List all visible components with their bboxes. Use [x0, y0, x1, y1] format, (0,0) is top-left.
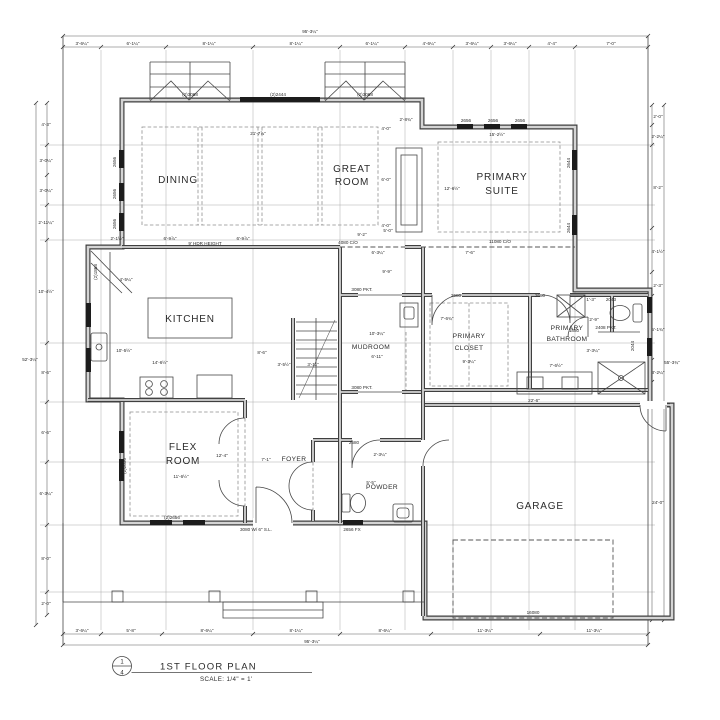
ann-d-9-2: 9'-2" — [357, 232, 367, 237]
ann-great-width: 21'-7⅞" — [250, 131, 266, 136]
ann-flex-h: 12'-4" — [216, 453, 228, 458]
kitchen-sink — [91, 333, 107, 361]
range — [140, 377, 173, 398]
ann-wc-door: 1880 — [569, 328, 580, 333]
room-label-kitchen: KITCHEN — [165, 314, 215, 325]
porch-post — [112, 591, 123, 602]
room-label-flex-1: FLEX — [169, 442, 197, 453]
ann-flex-win-front: (2)2656 — [164, 515, 180, 520]
ann-suite-w: 15'-2½" — [489, 131, 505, 137]
porch-post — [403, 591, 414, 602]
dim-right-1: 2'-2¼" — [652, 134, 665, 139]
ann-d-6-3: 6'-3¼" — [372, 250, 385, 255]
ann-wc-clr: 1'-3" — [586, 297, 596, 302]
dim-left-4: 10'-4½" — [38, 288, 54, 294]
room-label-great-2: ROOM — [335, 177, 369, 188]
dim-left-8: 8'-0" — [41, 556, 51, 561]
dim-right-overall: 55'-3¾" — [664, 360, 680, 365]
dim-bottom-4: 8'-6¼" — [379, 628, 392, 633]
room-label-suite-2: SUITE — [485, 186, 518, 197]
dim-bottom-5: 11'-3¼" — [477, 628, 493, 633]
ann-wc-d: 2'-9" — [589, 317, 599, 322]
garage-door — [453, 540, 613, 618]
ann-front-door: 3080 W/ 6" S.L. — [240, 527, 272, 532]
ann-suite-win-r1: 2644 — [566, 157, 571, 168]
ann-header-center: (2)2444 — [270, 92, 286, 97]
dim-left-0: 4'-3" — [41, 122, 51, 127]
dim-right-5: 5'-1¾" — [652, 327, 665, 332]
porch-post — [306, 591, 317, 602]
fireplace — [396, 148, 422, 232]
kitchen-cabinet — [197, 375, 232, 398]
dim-left-6: 6'-6" — [41, 430, 51, 435]
dim-top-4: 6'-1¼" — [366, 41, 379, 46]
dim-top-5: 4'-6¼" — [423, 41, 436, 46]
ann-powder-d: 5'-5" — [366, 480, 376, 485]
porch-steps — [223, 602, 323, 618]
dim-left-5: 8'-6" — [41, 370, 51, 375]
room-label-closet-2: CLOSET — [455, 345, 484, 352]
ann-mud-h: 9'-9" — [382, 269, 392, 274]
powder-toilet — [342, 494, 350, 512]
ann-fp-d2: 6'-0" — [381, 177, 391, 182]
dim-left-7: 6'-3¼" — [40, 491, 53, 496]
dim-top-2: 8'-1¼" — [203, 41, 216, 46]
ann-dining-win-2: 2656 — [112, 188, 117, 199]
ann-k-w: 14'-6½" — [152, 359, 168, 365]
title-block: 1 4 1ST FLOOR PLAN SCALE: 1/4" = 1' — [113, 657, 313, 684]
dim-right-4: 2'-3" — [653, 283, 663, 288]
ann-bath-door: 2680 — [535, 293, 546, 298]
room-label-bath-2: BATHROOM — [547, 336, 588, 343]
ann-d-2-1: 2'-1½" — [111, 235, 124, 241]
detail-number: 1 — [120, 660, 124, 666]
room-label-great-1: GREAT — [333, 164, 371, 175]
dim-top-overall: 95'-3¼" — [302, 29, 318, 34]
ann-fp-d4: 2'-8¾" — [400, 117, 413, 122]
ann-suite-win-1: 2656 — [461, 118, 472, 123]
dim-bottom-2: 8'-6¼" — [201, 628, 214, 633]
ann-bay-left: (2)3068 — [182, 92, 198, 97]
ann-bay-right: (2)3068 — [357, 92, 373, 97]
ann-closet-d: 7'-6¾" — [441, 316, 454, 321]
porch-post — [209, 591, 220, 602]
dim-left-3: 2'-11¼" — [38, 220, 54, 225]
powder-sink — [393, 504, 413, 522]
ann-mud-d: 10'-3¼" — [369, 331, 385, 336]
dim-right-6: 3'-2¼" — [652, 370, 665, 375]
plan-scale: SCALE: 1/4" = 1' — [200, 676, 253, 683]
ann-suite-h: 12'-6½" — [444, 185, 460, 191]
ann-garage-w: 22'-6" — [528, 398, 540, 403]
dim-right-0: 2'-0" — [653, 114, 663, 119]
dim-right-2: 8'-2" — [653, 185, 663, 190]
ann-shower-win: 2044 — [630, 340, 635, 351]
ann-d-3-5: 3'-5½" — [278, 361, 291, 367]
ann-closet-w: 9'-3¼" — [463, 359, 476, 364]
room-label-garage: GARAGE — [516, 501, 564, 512]
drawing-sheet: 95'-3¼" 3'-6¼" 6'-1¼" 8'-1¼" 8'-1¼" 6'-1… — [0, 0, 720, 720]
dim-left-overall: 52'-3¼" — [22, 357, 38, 362]
porch — [63, 523, 425, 618]
ann-pkt-wc: 2408 PKT. — [595, 325, 616, 330]
dim-top-6: 3'-6¼" — [466, 41, 479, 46]
room-label-dining: DINING — [158, 175, 198, 186]
stairs — [296, 318, 337, 400]
room-label-closet-1: PRIMARY — [453, 333, 486, 340]
ann-hall-w: 7'-6" — [465, 250, 475, 255]
ann-wc-win: 2043 — [606, 297, 617, 302]
ann-flex-w: 11'-6½" — [173, 473, 189, 479]
room-label-suite-1: PRIMARY — [477, 172, 528, 183]
dim-left-1: 3'-0¼" — [40, 158, 53, 163]
ann-pkt-bottom: 3080 PKT. — [351, 385, 372, 390]
ann-dining-win-3: 2656 — [112, 218, 117, 229]
front-door-swing — [256, 487, 292, 523]
interior-walls — [88, 247, 670, 616]
dim-top-0: 3'-6¼" — [76, 41, 89, 46]
dim-top-1: 6'-1¼" — [127, 41, 140, 46]
ann-suite-win-r2: 2644 — [566, 222, 571, 233]
window-header — [240, 97, 320, 102]
ann-garage-door: 16080 — [527, 610, 540, 615]
ann-k-pantry-d: 4'-5¼" — [120, 277, 133, 282]
ann-k-h: 10'-5½" — [116, 347, 132, 353]
ann-mud-w: 6'-11" — [371, 354, 383, 359]
dim-left-9: 2'-0" — [41, 601, 51, 606]
ann-dining-win-1: 2656 — [112, 156, 117, 167]
ann-d-8-6: 8'-6" — [257, 350, 267, 355]
ann-powder-door: 2680 — [349, 440, 360, 445]
foyer-double-door-swing — [289, 462, 313, 510]
ann-bath-w: 7'-6½" — [550, 362, 563, 368]
ann-co-4080: 4080 C/O — [338, 240, 358, 245]
ann-d-6-9a: 6'-9⅞" — [164, 236, 177, 241]
plan-title: 1ST FLOOR PLAN — [160, 662, 257, 673]
ann-foyer-w: 7'-1" — [261, 457, 271, 462]
ann-d-3-11: 3'-11" — [307, 362, 319, 367]
dim-top-8: 4'-4" — [547, 41, 557, 46]
dim-bottom-6: 11'-3¼" — [586, 628, 602, 633]
dim-top-3: 8'-1¼" — [290, 41, 303, 46]
dim-top-7: 3'-6¼" — [504, 41, 517, 46]
ann-pantry-door: (2)1868 — [93, 264, 98, 280]
ann-co-11080: 11080 C/O — [489, 239, 511, 244]
ann-d-6-9b: 6'-9⅞" — [237, 236, 250, 241]
ann-flex-win-side: (2)2656 — [122, 458, 127, 474]
ann-fixed-win: 2656 FX — [343, 527, 360, 532]
ann-pkt-top: 3080 PKT. — [351, 287, 372, 292]
ann-suite-win-3: 2656 — [515, 118, 526, 123]
ann-hdr-height: 9' HDR HEIGHT — [188, 241, 221, 246]
bath-door-swing — [542, 295, 570, 323]
dim-top-9: 7'-0" — [606, 41, 616, 46]
dim-bottom-0: 3'-6¼" — [76, 628, 89, 633]
dim-right-3: 4'-1½" — [652, 248, 665, 254]
dim-bottom-1: 5'-8" — [126, 628, 136, 633]
ann-closet-door: 2680 — [451, 293, 462, 298]
dim-left-2: 3'-0¼" — [40, 188, 53, 193]
dim-bottom-overall: 95'-3¼" — [304, 639, 320, 644]
dim-bottom-3: 8'-1¼" — [290, 628, 303, 633]
room-label-mudroom: MUDROOM — [352, 344, 390, 351]
ann-fp-d1: 4'-0" — [381, 126, 391, 131]
ann-bath-d: 3'-3¼" — [587, 348, 600, 353]
room-label-flex-2: ROOM — [166, 456, 200, 467]
room-label-powder: POWDER — [366, 484, 398, 491]
floor-plan-canvas: 95'-3¼" 3'-6¼" 6'-1¼" 8'-1¼" 8'-1¼" 6'-1… — [0, 0, 720, 720]
ann-d-5-0: 5'-0" — [383, 228, 393, 233]
ann-powder-w: 2'-3¼" — [374, 452, 387, 457]
ann-suite-win-2: 2656 — [488, 118, 499, 123]
room-label-foyer: FOYER — [282, 456, 307, 463]
dim-right-7: 24'-0" — [652, 500, 664, 505]
